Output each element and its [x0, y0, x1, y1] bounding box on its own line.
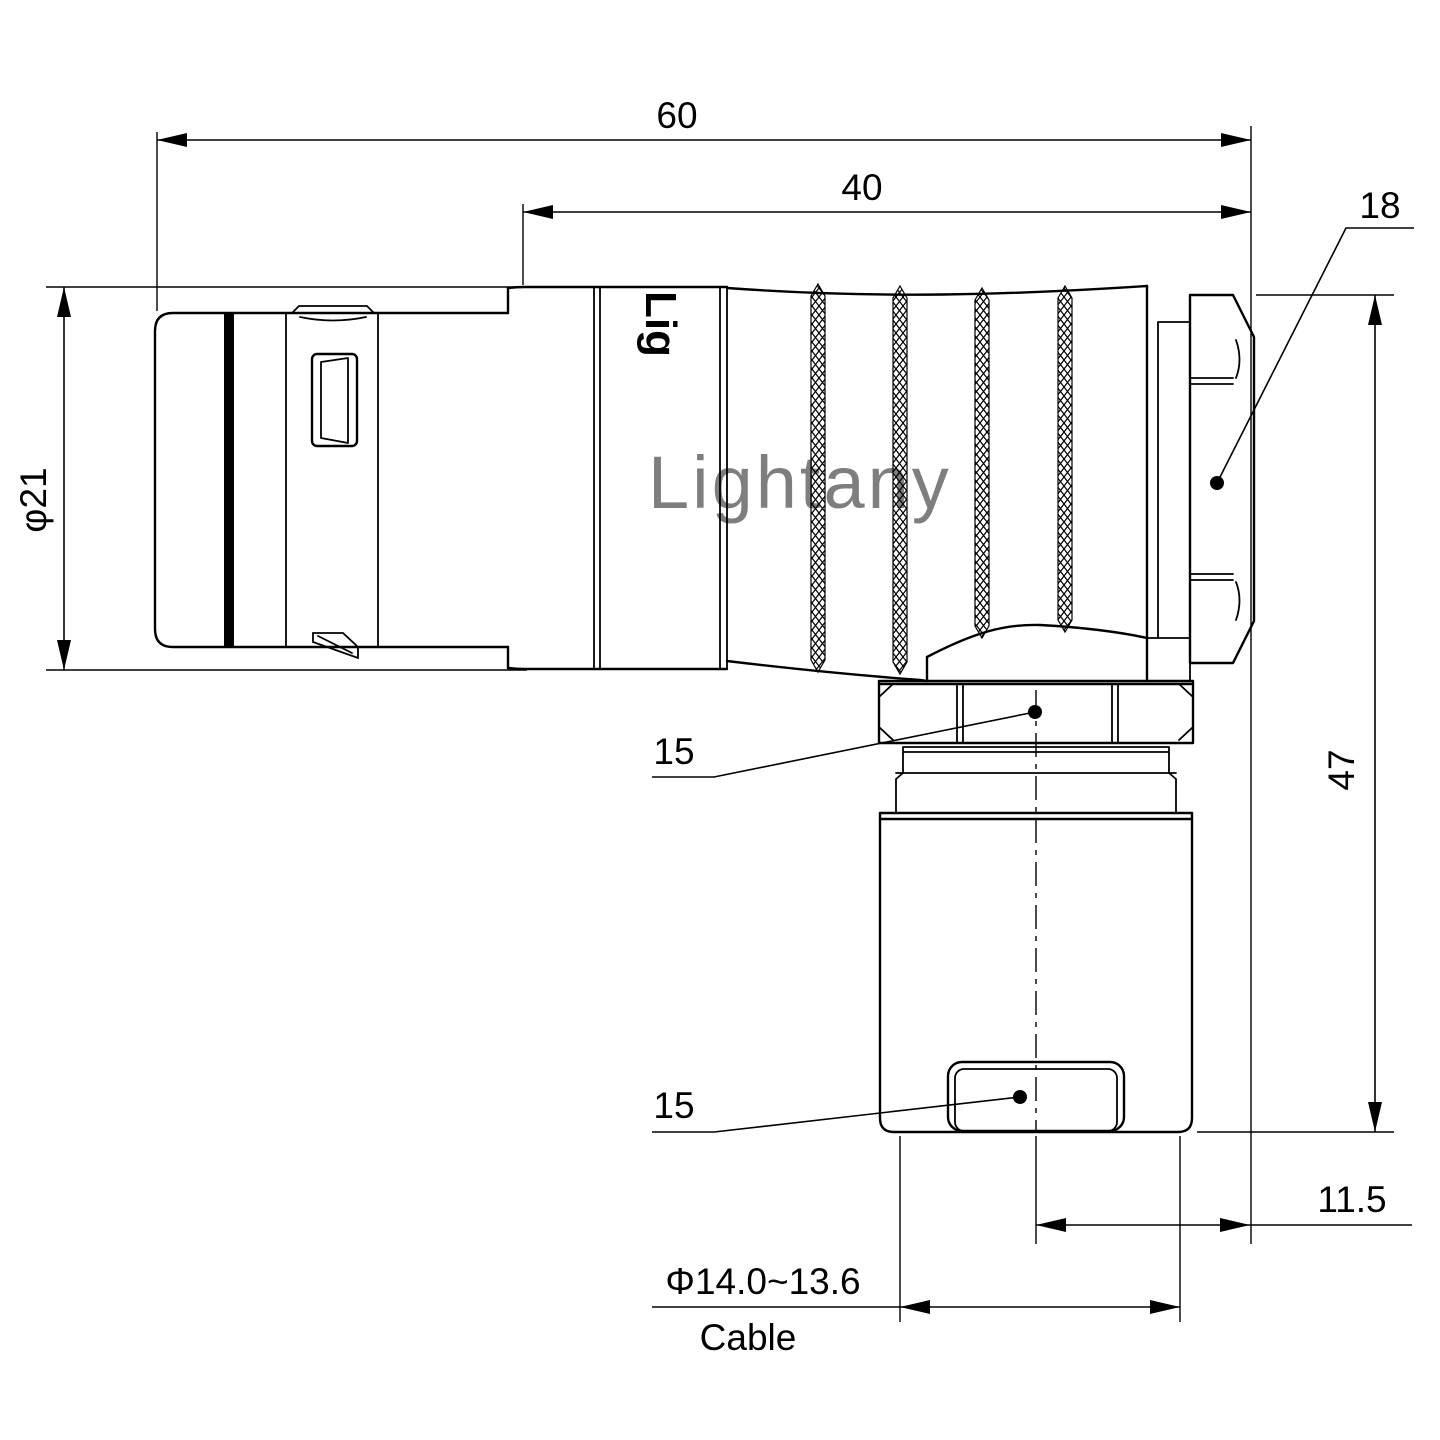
dim-label-40: 40: [841, 167, 882, 208]
knurl-band: [1058, 286, 1072, 632]
back-nut-chamfer: [1236, 340, 1240, 620]
dim-coupling-nut-leader: 15: [652, 705, 1042, 777]
dim-label-11-5: 11.5: [1317, 1179, 1386, 1220]
knurl-band: [975, 288, 989, 638]
technical-drawing-page: Lightany Lig: [0, 0, 1440, 1440]
grip-top-edge: [727, 286, 1147, 295]
dim-label-phi21: φ21: [13, 467, 54, 532]
dimensions: 60 40 φ21 47 1: [13, 95, 1414, 1358]
bushing-top: [880, 813, 1192, 819]
dim-label-cable-caption: Cable: [700, 1317, 797, 1358]
shell-ring-band: [224, 313, 234, 647]
front-shell-outline: [155, 313, 508, 647]
dim-label-15-bottom: 15: [653, 1085, 694, 1126]
latch-hook: [313, 633, 358, 658]
body-stamp-text: Lig: [636, 291, 685, 357]
latch-tab-shoulder: [300, 317, 366, 321]
dim-backnut-leader: 18: [1210, 185, 1414, 490]
dim-cable-diameter: Φ14.0~13.6 Cable: [652, 1136, 1180, 1358]
keyway-slot: [312, 354, 357, 446]
knurl-band: [893, 286, 907, 674]
dim-front-diameter: φ21: [13, 287, 527, 670]
dim-label-47: 47: [1321, 749, 1362, 790]
dim-rear-length: 40: [523, 167, 1251, 285]
dim-bushing-leader: 15: [652, 1085, 1027, 1132]
neck-lines: [1147, 322, 1190, 638]
dim-height: 47: [1197, 295, 1394, 1132]
dim-label-60: 60: [656, 95, 697, 136]
connector-elbow-drawing: Lightany Lig: [0, 0, 1440, 1440]
elbow-assembly: [879, 681, 1193, 1132]
dim-label-15-top: 15: [653, 731, 694, 772]
shell-section-lines: [286, 313, 378, 647]
elbow-fillet-edge: [927, 625, 1147, 681]
knurl-band: [811, 284, 825, 672]
dim-label-cable-diameter: Φ14.0~13.6: [665, 1261, 860, 1302]
keyway-slot-inner: [321, 358, 348, 443]
dim-label-18: 18: [1359, 185, 1400, 226]
dim-cable-offset: 11.5: [1036, 1136, 1412, 1244]
